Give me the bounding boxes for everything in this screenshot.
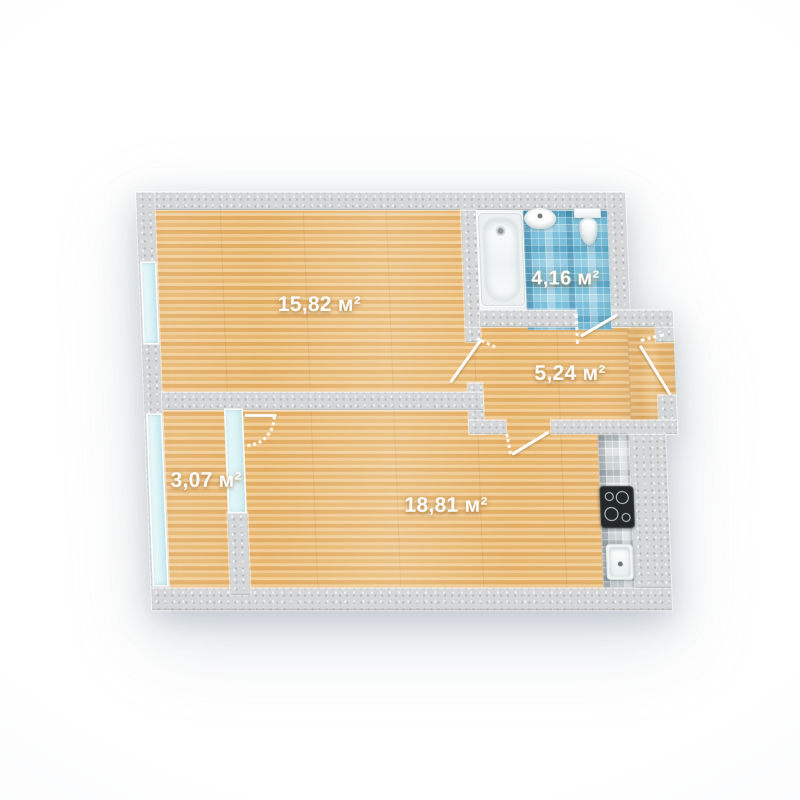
wall-top xyxy=(136,192,626,210)
washbasin-icon xyxy=(524,208,557,229)
washbasin-tap xyxy=(537,213,542,218)
wall-bottom xyxy=(151,588,672,610)
burner-small-icon xyxy=(621,513,630,522)
kitchen-sink-drain xyxy=(617,561,622,566)
floor-plan-canvas: 15,82 м² 4,16 м² 5,24 м² 18,81 м² 3,07 м… xyxy=(0,0,800,800)
wall-kitchen-right xyxy=(629,434,671,588)
wall-hall-extension-top xyxy=(612,310,674,327)
burner-large-icon xyxy=(604,507,619,521)
room-label-balcony: 3,07 м² xyxy=(171,469,242,493)
wall-room-divider xyxy=(162,392,484,410)
apartment-floor-plan: 15,82 м² 4,16 м² 5,24 м² 18,81 м² 3,07 м… xyxy=(132,190,688,614)
room-label-living: 15,82 м² xyxy=(278,293,361,317)
burner-large-icon xyxy=(616,491,629,504)
bathtub-drain xyxy=(497,228,503,234)
bathtub-icon xyxy=(478,213,526,306)
wall-hall-bottom-left xyxy=(469,420,507,434)
room-label-bathroom: 4,16 м² xyxy=(531,268,599,291)
wall-hall-bottom-right xyxy=(551,420,678,434)
room-label-hallway: 5,24 м² xyxy=(534,362,605,386)
cooktop-icon xyxy=(599,486,635,528)
toilet-tank xyxy=(574,208,601,218)
wall-balcony-partition-block xyxy=(227,512,250,595)
wall-bathroom-bottom xyxy=(480,310,578,327)
kitchen-sink-icon xyxy=(606,544,634,580)
room-label-room: 18,81 м² xyxy=(404,494,487,518)
burner-small-icon xyxy=(605,492,614,501)
wall-bathroom-right xyxy=(607,192,630,327)
